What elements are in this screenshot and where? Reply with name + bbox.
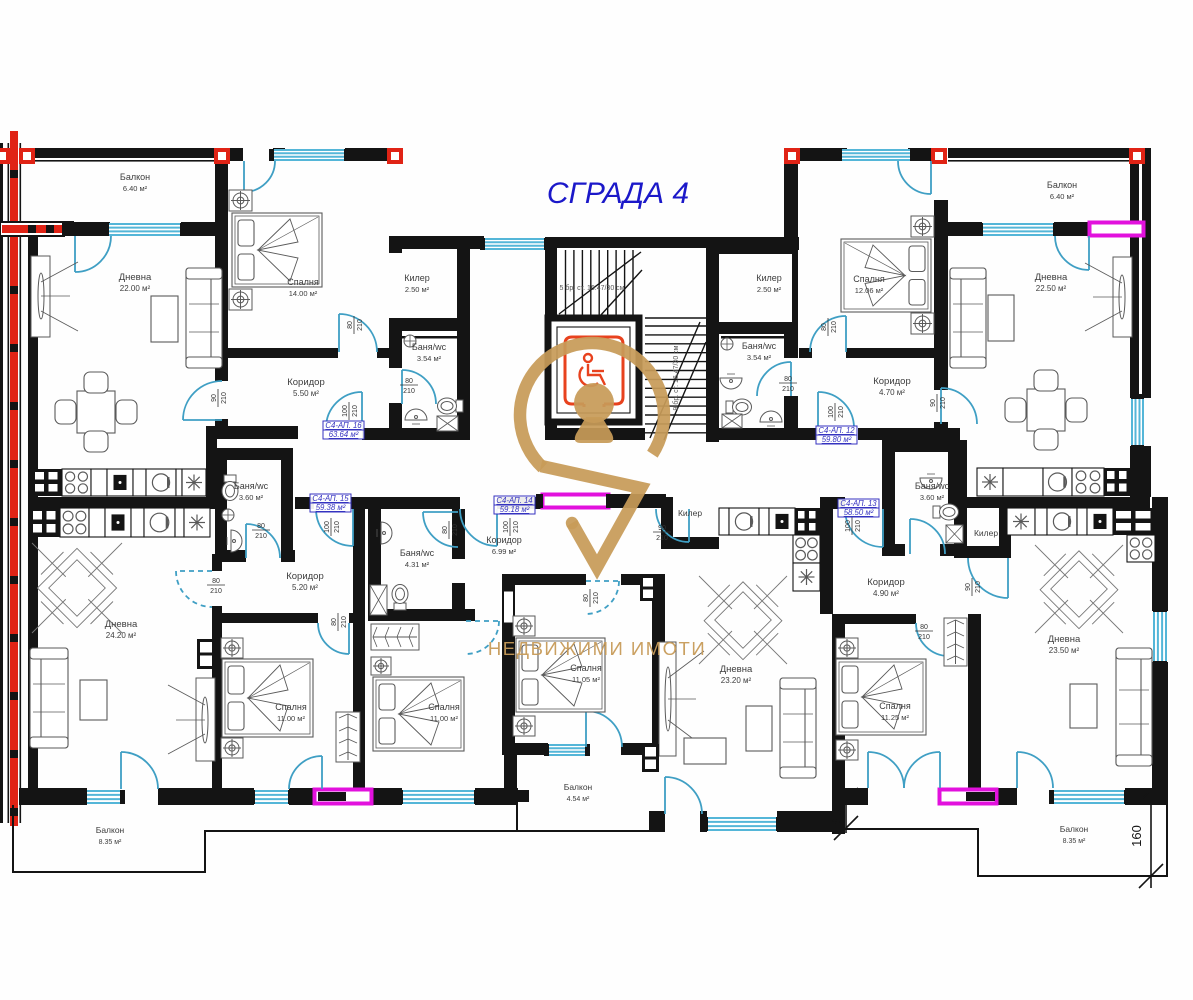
svg-text:11.00 м²: 11.00 м² <box>277 714 305 723</box>
svg-text:5.20 м²: 5.20 м² <box>292 583 318 592</box>
svg-text:С4-АП. 14: С4-АП. 14 <box>496 496 533 505</box>
svg-text:3.60 м²: 3.60 м² <box>920 493 945 502</box>
svg-text:210: 210 <box>782 386 794 393</box>
svg-text:8.35 м²: 8.35 м² <box>99 839 122 846</box>
svg-text:100: 100 <box>342 405 349 417</box>
svg-text:14.00 м²: 14.00 м² <box>289 289 318 298</box>
svg-text:210: 210 <box>341 616 348 628</box>
svg-text:100: 100 <box>845 520 852 532</box>
svg-text:4.70 м²: 4.70 м² <box>879 388 905 397</box>
svg-text:210: 210 <box>855 520 862 532</box>
svg-text:60: 60 <box>829 810 844 824</box>
svg-text:100: 100 <box>324 521 331 533</box>
svg-text:6.40 м²: 6.40 м² <box>1050 192 1075 201</box>
svg-text:59.18 м²: 59.18 м² <box>500 505 530 514</box>
svg-text:8.35 м²: 8.35 м² <box>1063 838 1086 845</box>
svg-text:80: 80 <box>583 594 590 602</box>
svg-text:63.64 м²: 63.64 м² <box>329 430 359 439</box>
svg-text:80: 80 <box>212 578 220 585</box>
svg-text:23.20 м²: 23.20 м² <box>721 676 752 685</box>
svg-text:210: 210 <box>918 634 930 641</box>
svg-text:80: 80 <box>331 618 338 626</box>
svg-text:Баня/wc: Баня/wc <box>234 481 269 491</box>
svg-text:5 бр. ст. 16.47/30 см: 5 бр. ст. 16.47/30 см <box>560 284 625 292</box>
svg-text:210: 210 <box>452 524 459 536</box>
svg-text:Килер: Килер <box>678 508 702 518</box>
svg-text:210: 210 <box>221 392 228 404</box>
svg-text:80: 80 <box>821 323 828 331</box>
svg-text:Дневна: Дневна <box>1048 634 1081 645</box>
svg-text:Спалня: Спалня <box>275 702 307 712</box>
svg-text:80: 80 <box>405 378 413 385</box>
svg-text:Коридор: Коридор <box>486 535 522 545</box>
svg-text:Коридор: Коридор <box>287 377 325 388</box>
svg-text:Коридор: Коридор <box>873 376 911 387</box>
svg-text:210: 210 <box>334 521 341 533</box>
svg-text:210: 210 <box>831 321 838 333</box>
svg-text:Дневна: Дневна <box>119 272 152 283</box>
svg-text:3.54 м²: 3.54 м² <box>747 353 772 362</box>
svg-text:80: 80 <box>920 624 928 631</box>
svg-text:12.06 м²: 12.06 м² <box>855 286 884 295</box>
svg-text:Балкон: Балкон <box>1060 824 1089 834</box>
svg-text:9 бр. ст. 16.47/30 см: 9 бр. ст. 16.47/30 см <box>672 345 680 410</box>
svg-text:С4-АП. 15: С4-АП. 15 <box>312 494 349 503</box>
svg-text:4.90 м²: 4.90 м² <box>873 589 899 598</box>
svg-text:2.50 м²: 2.50 м² <box>757 285 782 294</box>
svg-text:210: 210 <box>838 406 845 418</box>
svg-text:90: 90 <box>658 525 666 532</box>
svg-text:Баня/wc: Баня/wc <box>742 341 777 351</box>
svg-text:5.50 м²: 5.50 м² <box>293 389 319 398</box>
svg-text:6.40 м²: 6.40 м² <box>123 184 148 193</box>
svg-text:22.00 м²: 22.00 м² <box>120 284 151 293</box>
svg-text:С4-АП. 13: С4-АП. 13 <box>840 499 877 508</box>
svg-text:Баня/wc: Баня/wc <box>412 342 447 352</box>
svg-text:11.00 м²: 11.00 м² <box>430 714 458 723</box>
svg-text:Спалня: Спалня <box>570 663 602 673</box>
svg-text:210: 210 <box>255 533 267 540</box>
svg-text:90: 90 <box>965 583 972 591</box>
svg-text:2.50 м²: 2.50 м² <box>405 285 430 294</box>
svg-text:210: 210 <box>210 588 222 595</box>
svg-text:90: 90 <box>930 399 937 407</box>
svg-text:Балкон: Балкон <box>1047 180 1077 190</box>
svg-text:80: 80 <box>257 523 265 530</box>
svg-text:80: 80 <box>442 526 449 534</box>
svg-text:С4-АП. 12: С4-АП. 12 <box>818 426 855 435</box>
svg-text:3.60 м²: 3.60 м² <box>239 493 264 502</box>
svg-text:Дневна: Дневна <box>105 619 138 630</box>
svg-text:Балкон: Балкон <box>96 825 125 835</box>
svg-text:210: 210 <box>975 581 982 593</box>
svg-text:90: 90 <box>211 394 218 402</box>
svg-text:24.20 м²: 24.20 м² <box>106 631 137 640</box>
svg-text:210: 210 <box>940 397 947 409</box>
svg-text:59.80 м²: 59.80 м² <box>822 435 852 444</box>
svg-text:НЕДВИЖИМИ ИМОТИ: НЕДВИЖИМИ ИМОТИ <box>488 638 706 659</box>
svg-text:Коридор: Коридор <box>867 577 905 588</box>
svg-text:210: 210 <box>513 521 520 533</box>
svg-text:210: 210 <box>403 388 415 395</box>
svg-text:6.99 м²: 6.99 м² <box>492 547 517 556</box>
svg-text:Килер: Килер <box>404 273 430 283</box>
svg-text:Спалня: Спалня <box>853 274 885 284</box>
svg-text:Балкон: Балкон <box>120 172 150 182</box>
svg-text:Дневна: Дневна <box>1035 272 1068 283</box>
svg-text:Баня/wc: Баня/wc <box>915 481 950 491</box>
svg-text:3.54 м²: 3.54 м² <box>417 354 442 363</box>
svg-text:100: 100 <box>503 521 510 533</box>
svg-text:11.05 м²: 11.05 м² <box>572 675 600 684</box>
svg-text:СГРАДА 4: СГРАДА 4 <box>547 177 689 210</box>
svg-text:Спалня: Спалня <box>287 277 319 287</box>
svg-text:С4-АП. 16: С4-АП. 16 <box>325 421 362 430</box>
svg-text:Балкон: Балкон <box>564 782 593 792</box>
svg-text:11.25 м²: 11.25 м² <box>881 713 909 722</box>
svg-text:80: 80 <box>784 376 792 383</box>
svg-text:4.54 м²: 4.54 м² <box>567 796 590 803</box>
svg-text:58.50 м²: 58.50 м² <box>844 508 874 517</box>
svg-text:Дневна: Дневна <box>720 664 753 675</box>
svg-text:210: 210 <box>352 405 359 417</box>
svg-text:Килер: Килер <box>756 273 782 283</box>
svg-text:Спалня: Спалня <box>879 701 911 711</box>
svg-text:Баня/wc: Баня/wc <box>400 548 435 558</box>
svg-text:Спалня: Спалня <box>428 702 460 712</box>
svg-text:210: 210 <box>357 319 364 331</box>
svg-text:80: 80 <box>347 321 354 329</box>
svg-text:Коридор: Коридор <box>286 571 324 582</box>
svg-text:100: 100 <box>828 406 835 418</box>
svg-text:160: 160 <box>1129 825 1144 847</box>
svg-text:210: 210 <box>656 535 668 542</box>
svg-text:59.38 м²: 59.38 м² <box>316 503 346 512</box>
svg-text:Килер: Килер <box>974 528 998 538</box>
svg-text:22.50 м²: 22.50 м² <box>1036 284 1067 293</box>
svg-text:23.50 м²: 23.50 м² <box>1049 646 1080 655</box>
svg-text:4.31 м²: 4.31 м² <box>405 560 430 569</box>
svg-text:210: 210 <box>593 592 600 604</box>
